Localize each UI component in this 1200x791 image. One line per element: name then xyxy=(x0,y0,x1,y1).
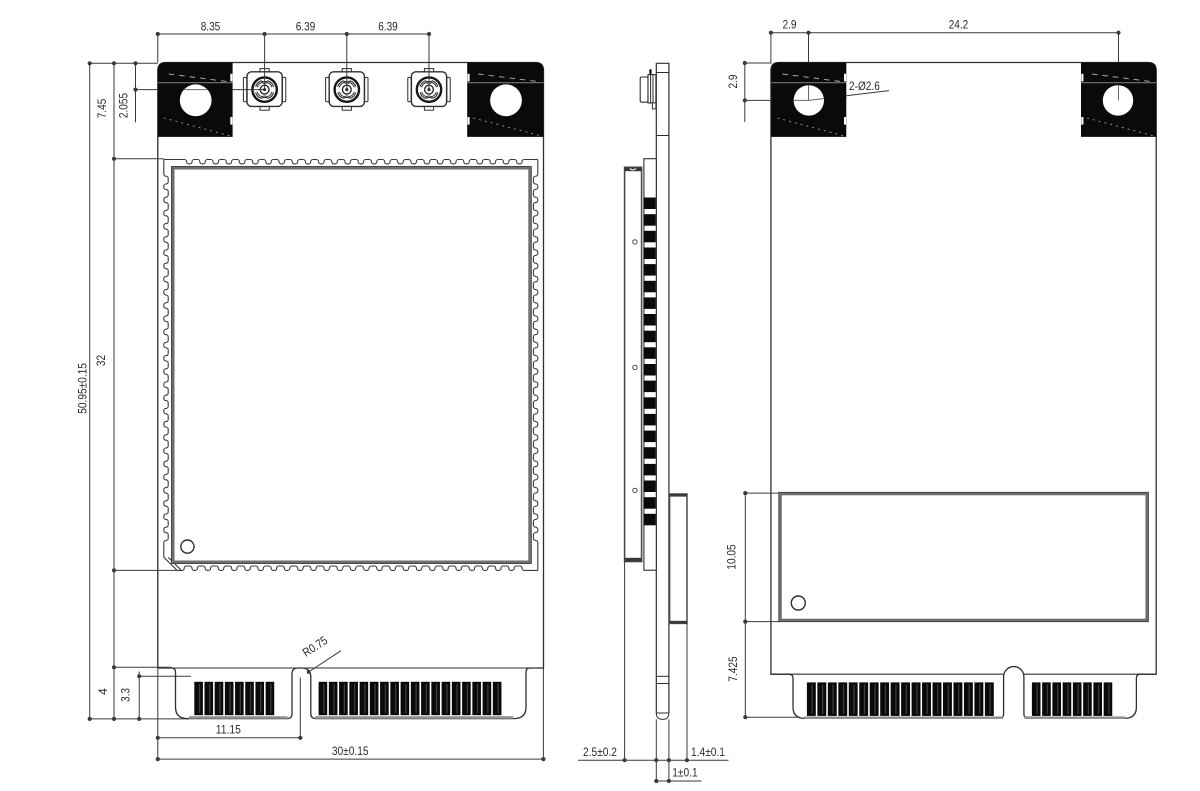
svg-text:32: 32 xyxy=(94,355,108,366)
svg-text:4: 4 xyxy=(96,688,110,695)
svg-text:50.95±0.15: 50.95±0.15 xyxy=(75,363,89,414)
svg-text:7.425: 7.425 xyxy=(726,656,740,681)
svg-text:10.05: 10.05 xyxy=(724,544,738,569)
svg-text:6.39: 6.39 xyxy=(296,19,316,33)
svg-text:2.055: 2.055 xyxy=(117,93,131,118)
svg-text:8.35: 8.35 xyxy=(201,19,221,33)
svg-text:24.2: 24.2 xyxy=(949,18,969,32)
svg-text:2-Ø2.6: 2-Ø2.6 xyxy=(849,79,880,93)
svg-text:6.39: 6.39 xyxy=(378,19,398,33)
svg-text:1±0.1: 1±0.1 xyxy=(672,766,698,780)
svg-text:7.45: 7.45 xyxy=(95,98,109,118)
svg-text:3.3: 3.3 xyxy=(119,688,133,702)
svg-text:11.15: 11.15 xyxy=(216,723,241,737)
svg-text:2.5±0.2: 2.5±0.2 xyxy=(583,745,617,759)
svg-text:1.4±0.1: 1.4±0.1 xyxy=(691,745,725,759)
svg-text:2.9: 2.9 xyxy=(783,18,797,32)
svg-text:2.9: 2.9 xyxy=(726,74,740,88)
svg-text:30±0.15: 30±0.15 xyxy=(332,744,369,758)
